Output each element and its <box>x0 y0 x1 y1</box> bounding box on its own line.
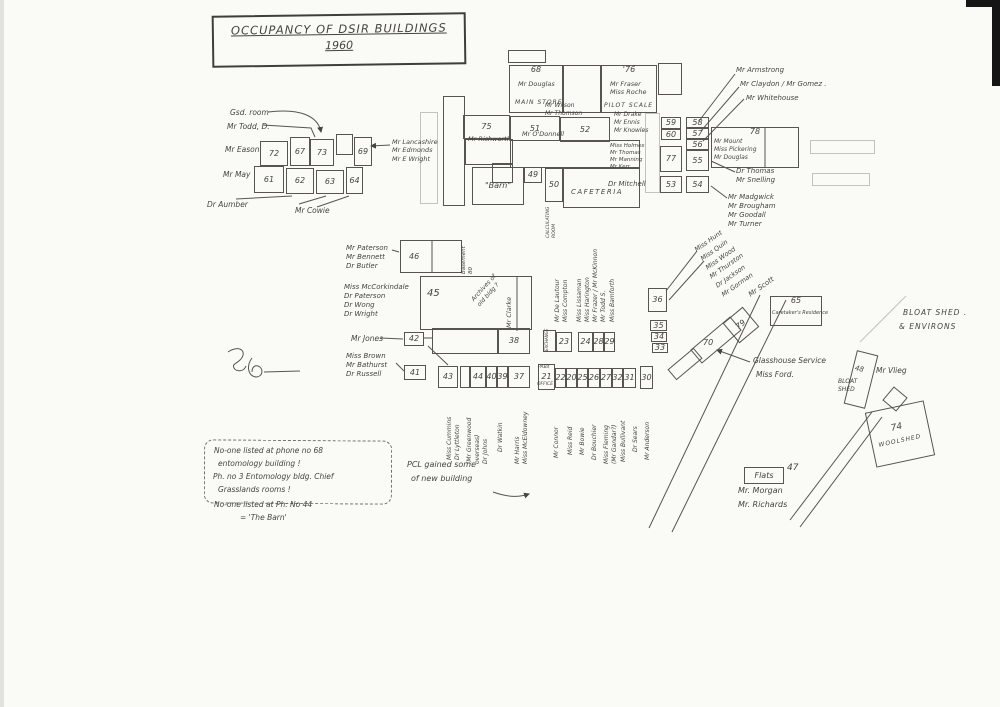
building-number: 52 <box>580 126 590 134</box>
building-34: 34 <box>651 332 667 342</box>
map-label: Mr Eason <box>225 145 260 155</box>
building-number: 54 <box>692 181 702 189</box>
map-label: Dr Watkin <box>497 422 505 452</box>
pointer-gsd-room <box>268 111 321 132</box>
pointer-glasshouse <box>717 350 750 362</box>
building-number: 36 <box>652 296 662 304</box>
map-label: Caretaker's Residence <box>772 310 828 317</box>
map-label: Mr Jones <box>351 334 383 344</box>
map-label: Mr. Morgan <box>738 486 783 496</box>
map-label: Mr Todd, D. <box>227 122 270 132</box>
building-box <box>432 328 498 354</box>
building-number: 56 <box>692 141 702 149</box>
building-39: 39 <box>497 366 508 388</box>
building-number: 77 <box>666 155 676 163</box>
building-64: 64 <box>346 167 363 194</box>
map-label: Dr Aumber <box>207 200 248 210</box>
building-number: 50 <box>549 181 559 189</box>
building-number: 32 <box>612 374 622 382</box>
building-number: 69 <box>358 148 368 156</box>
building-27: 27 <box>600 368 612 388</box>
label-gsd-room: Gsd. room <box>230 108 269 118</box>
road <box>790 412 872 520</box>
building-38: 38 <box>498 328 530 354</box>
building-77: 77 <box>660 146 682 172</box>
pointer-mr-todd <box>263 125 315 137</box>
building-number: 24 <box>580 338 590 346</box>
map-label: Mr Paterson Mr Bennett Dr Butler <box>346 244 388 271</box>
map-label: Dr Thomas Mr Snelling <box>736 167 775 185</box>
building-number: 33 <box>655 344 665 352</box>
building-Barn: "Barn" <box>472 167 524 205</box>
building-59: 59 <box>661 117 681 129</box>
building-number: 68 <box>531 66 541 74</box>
building-46: 46 <box>400 240 462 273</box>
scan-artifact <box>966 0 992 7</box>
pointer-mr-jones <box>381 338 403 339</box>
building-55: 55 <box>686 150 709 171</box>
map-label: Miss Brown Mr Bathurst Dr Russell <box>346 352 387 379</box>
building-number: 57 <box>692 130 702 138</box>
scanned-map-page: OCCUPANCY OF DSIR BUILDINGS 1960 7267736… <box>0 0 1000 707</box>
map-label: 45 <box>427 287 440 300</box>
building-73: 73 <box>310 139 334 166</box>
building-26: 26 <box>588 368 600 388</box>
building-box <box>667 348 702 381</box>
map-label: Miss Ford. <box>756 370 794 380</box>
scribble <box>228 349 246 371</box>
building-number: 53 <box>666 181 676 189</box>
map-label: & ENVIRONS <box>899 322 956 332</box>
map-label: Mr. Richards <box>738 500 787 510</box>
building-number: 39 <box>497 373 507 381</box>
note-line: No-one listed at phone no 68 <box>214 446 323 456</box>
building-56: 56 <box>686 139 709 150</box>
pointer-hunt-group <box>669 261 704 300</box>
map-label: Mr Douglas <box>518 80 555 88</box>
scribble <box>249 358 262 377</box>
map-label: Mr Whitehouse <box>746 94 799 103</box>
map-label: Mr Rishworth <box>468 135 511 143</box>
building-box <box>460 366 470 388</box>
building-42: 42 <box>404 332 424 346</box>
building-32: 32 <box>612 368 623 388</box>
map-label: 74 <box>890 422 904 436</box>
building-number: 73 <box>317 149 327 157</box>
map-label: (Mr Greenwood overseas) Dr Johns <box>466 418 489 464</box>
building-number: 40 <box>486 373 496 381</box>
building-number: 60 <box>666 131 676 139</box>
building-24: 24 <box>578 332 593 352</box>
building-44: 44 <box>470 366 486 388</box>
map-label: Miss Lissaman Miss Harington <box>576 277 592 322</box>
map-year: 1960 <box>214 37 464 53</box>
map-label: Mr Anderson <box>644 422 652 460</box>
note-line: Grasslands rooms ! <box>218 485 291 495</box>
building-number: 59 <box>666 119 676 127</box>
building-60: 60 <box>661 129 681 140</box>
building-number: 67 <box>295 148 305 156</box>
building-number: Flats <box>754 472 773 480</box>
building-23: 23 <box>556 332 572 352</box>
building-67: 67 <box>290 137 310 166</box>
pointer-armstrong <box>699 74 735 121</box>
building-69: 69 <box>354 137 372 166</box>
building-22: 22 <box>555 368 566 388</box>
road-faint <box>860 296 906 342</box>
map-label: Miss Bamforth <box>609 279 617 322</box>
building-number: 62 <box>295 177 305 185</box>
map-label: PILOT SCALE <box>604 102 653 110</box>
building-33: 33 <box>652 343 668 353</box>
building-number: 63 <box>325 178 335 186</box>
building-29: 29 <box>604 332 615 352</box>
map-title: OCCUPANCY OF DSIR BUILDINGS <box>214 20 464 37</box>
map-label: Mr Connor <box>553 427 561 458</box>
building-number: 64 <box>349 177 359 185</box>
map-label: 70 <box>703 338 713 348</box>
building-number: 78 <box>750 128 760 136</box>
pointer-miss-brown <box>396 363 404 371</box>
map-label: Mr Drake Mr Ennis Mr Knowles <box>614 111 648 134</box>
note-line: = 'The Barn' <box>240 513 287 523</box>
scan-artifact <box>992 0 1000 86</box>
note-line: Ph. no 3 Entomology bldg. Chief <box>213 472 334 482</box>
map-label: Mr Harris Miss McEldowney <box>514 412 530 464</box>
building-box <box>812 173 870 186</box>
map-label: Miss Cummins Dr Lyttleton <box>446 417 462 460</box>
pointer-dr-aumber <box>236 196 292 199</box>
building-53: 53 <box>660 176 682 193</box>
building-43: 43 <box>438 366 458 388</box>
building-57: 57 <box>686 128 709 139</box>
note-line: of new building <box>411 474 472 484</box>
building-58: 58 <box>686 117 709 128</box>
title-box: OCCUPANCY OF DSIR BUILDINGS 1960 <box>212 12 467 68</box>
map-label: Miss Fleming (Mr Gandar?) <box>603 425 619 465</box>
building-54: 54 <box>686 176 709 193</box>
building-41: 41 <box>404 365 426 380</box>
map-label: Mr Lancashire Mr Edmonds Mr E Wright <box>392 138 438 163</box>
building-number: 28 <box>593 338 603 346</box>
building-40: 40 <box>486 366 497 388</box>
map-label: Mr Madgwick Mr Brougham Mr Goodall Mr Tu… <box>728 193 776 229</box>
building-37: 37 <box>508 366 530 388</box>
building-28: 28 <box>593 332 604 352</box>
building-number: 75 <box>481 123 491 131</box>
map-label: 47 <box>787 463 798 475</box>
map-label: Mr Claydon / Mr Gomez . <box>740 80 826 89</box>
building-50: 50 <box>545 168 563 202</box>
map-label: Mr Frazer / Mr McKinnon Mr Todd S. <box>592 249 608 322</box>
note-line: PCL gained some <box>407 460 476 470</box>
map-label: Glasshouse Service <box>753 356 826 366</box>
building-number: 55 <box>692 157 702 165</box>
map-label: Mr Bowie <box>579 427 587 455</box>
map-label: CALCULATING ROOM <box>546 207 558 238</box>
note-line: No-one listed at Ph. No 44 <box>214 500 312 510</box>
map-label: EXCHANGE <box>544 329 549 351</box>
map-label: Mr De Lautour Miss Compton <box>554 279 570 322</box>
scribble <box>264 371 300 372</box>
map-label: Mr Wilson Mr Thomson <box>545 102 582 118</box>
building-number: 26 <box>589 374 599 382</box>
building-box <box>810 140 875 154</box>
map-label: Dr Sears <box>632 426 640 452</box>
building-number: 42 <box>409 335 419 343</box>
building-box <box>865 400 935 467</box>
map-label: Miss Reid <box>567 427 575 455</box>
building-number: 49 <box>528 171 538 179</box>
building-31: 31 <box>623 368 636 388</box>
map-label: Miss Holmes Mr Thomas Mr Manning Mr Kerr <box>610 143 644 172</box>
building-number: 20 <box>566 374 576 382</box>
building-number: 23 <box>559 338 569 346</box>
building-62: 62 <box>286 168 314 194</box>
building-36: 36 <box>648 288 667 312</box>
building-52: 52 <box>560 117 610 142</box>
building-number: 35 <box>653 322 663 330</box>
map-label: Miss McCorkindale Dr Paterson Dr Wong Dr… <box>344 283 409 319</box>
building-20: 20 <box>566 368 577 388</box>
note-line: entomology building ! <box>218 459 300 469</box>
building-63: 63 <box>316 170 344 194</box>
building-number: 22 <box>555 374 565 382</box>
building-number: "Barn" <box>485 182 511 190</box>
building-number: 44 <box>473 373 483 381</box>
building-number: 27 <box>601 374 611 382</box>
pointer-lancashire <box>371 145 390 146</box>
map-label: Mr O'Donnell <box>522 130 564 138</box>
building-number: 30 <box>641 374 651 382</box>
building-number: 29 <box>604 338 614 346</box>
building-number: 43 <box>443 373 453 381</box>
map-label: Mr Armstrong <box>736 66 784 75</box>
building-box <box>336 134 353 155</box>
building-61: 61 <box>254 166 284 193</box>
building-72: 72 <box>260 141 288 166</box>
building-49: 49 <box>524 167 542 183</box>
pointer-mr-cowie <box>299 196 326 204</box>
map-label: Basement 80 <box>461 246 475 274</box>
building-box <box>443 96 465 206</box>
map-label: Mr Vlieg <box>876 366 907 376</box>
building-Flats: Flats <box>744 467 784 484</box>
map-label: OFFICE <box>537 382 553 388</box>
building-number: 38 <box>509 337 519 345</box>
map-label: Mr Cowie <box>295 206 330 216</box>
building-number: 34 <box>654 333 664 341</box>
pointer-paterson <box>392 250 399 252</box>
building-box <box>658 63 682 95</box>
map-label: BLOAT SHED . <box>903 308 967 318</box>
map-label: Miss Bullivant <box>620 421 628 462</box>
building-number: 21 <box>541 373 551 381</box>
building-number: 61 <box>264 176 274 184</box>
building-30: 30 <box>640 366 653 389</box>
map-label: PABX <box>538 365 550 371</box>
pointer-pcl <box>493 492 529 496</box>
map-label: Dr Bouchier <box>591 424 599 460</box>
map-label: Mr Clarke <box>505 297 513 328</box>
building-35: 35 <box>650 320 667 331</box>
building-number: 25 <box>577 374 587 382</box>
pointer-madgwick <box>711 186 727 198</box>
map-label: CAFETERIA <box>571 188 623 197</box>
building-number: 37 <box>514 373 524 381</box>
map-label: BLOAT SHED <box>838 378 857 394</box>
building-number: '76 <box>623 66 635 74</box>
building-number: 65 <box>791 297 801 305</box>
map-label: Mr Fraser Miss Roche <box>610 80 646 97</box>
scan-edge <box>0 0 4 707</box>
building-number: 58 <box>692 119 702 127</box>
map-label: Mr May <box>223 170 250 180</box>
building-number: 46 <box>409 253 419 261</box>
building-box <box>508 50 546 63</box>
building-number: 41 <box>410 369 420 377</box>
building-number: 72 <box>269 150 279 158</box>
building-25: 25 <box>577 368 588 388</box>
building-number: 31 <box>624 374 634 382</box>
pointer-hunt-group <box>666 251 697 291</box>
map-label: Mr Mount Miss Pickering Mr Douglas <box>714 138 757 161</box>
